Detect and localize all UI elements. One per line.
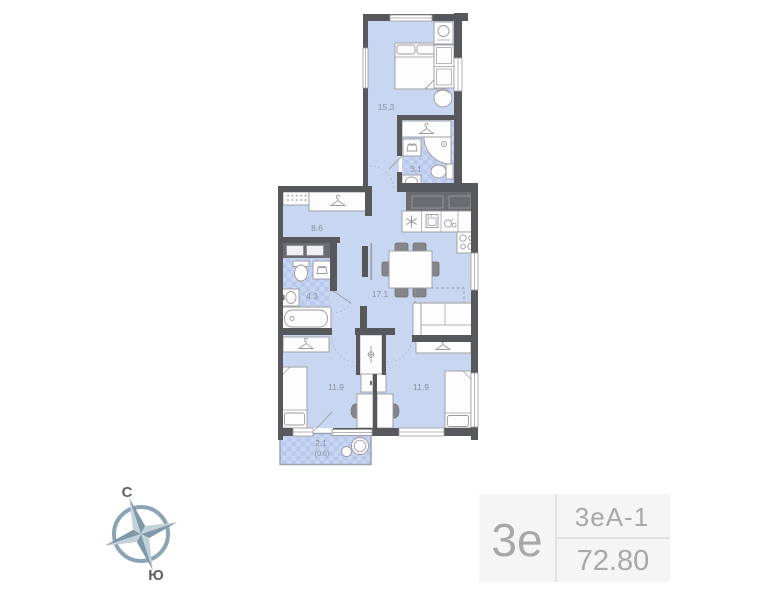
window-balcony-band	[332, 430, 372, 436]
dining-table	[389, 251, 432, 288]
toilet	[293, 261, 309, 281]
compass: С Ю	[93, 484, 189, 584]
wardrobe	[283, 337, 329, 352]
round-chair	[434, 89, 452, 107]
window-top-bedroom-west	[363, 48, 368, 88]
desk-left	[357, 394, 373, 428]
window-living-east	[471, 253, 478, 290]
shoe-cabinet	[283, 192, 309, 205]
hall-wardrobe	[309, 192, 367, 211]
compass-north-label: С	[122, 484, 133, 501]
area-label-balcony: 2.1	[315, 438, 327, 448]
area-label-bedroom-right: 11.9	[413, 382, 429, 392]
toilet	[431, 164, 453, 179]
desk-right	[377, 394, 393, 428]
double-bed	[395, 43, 437, 89]
window-top-bedroom-east	[454, 58, 462, 91]
wardrobe	[434, 45, 454, 88]
bed	[445, 371, 471, 428]
plate-rooms-short: 3е	[491, 514, 542, 566]
washing-machine	[313, 261, 331, 279]
floor-plan-svg: 15.3 3.1	[0, 0, 760, 600]
compass-south-label: Ю	[148, 567, 163, 584]
window-bedroom-right-south	[399, 428, 444, 436]
tv	[362, 246, 368, 277]
area-label-bathroom-small: 3.1	[410, 164, 422, 174]
kitchen-upper-cabinets	[406, 192, 477, 211]
plate-total-area: 72.80	[577, 545, 650, 577]
tv-unit	[362, 243, 372, 280]
window-bedroom-right-east	[471, 373, 478, 427]
bed	[282, 367, 307, 428]
area-label-bedroom-top: 15.3	[378, 102, 395, 112]
compass-rose	[93, 486, 189, 582]
window-top-bedroom-north	[390, 15, 432, 21]
kitchen-counter	[402, 211, 477, 232]
info-plate: 3е 3еА-1 72.80	[479, 494, 670, 582]
floor-plan-page: 15.3 3.1	[0, 0, 760, 600]
area-label-bedroom-left: 11.9	[328, 382, 344, 392]
dresser-with-mirror	[434, 22, 453, 44]
window-bedroom-left-south	[293, 428, 313, 436]
area-label-bathroom-main: 4.3	[306, 291, 318, 301]
balcony-stool	[342, 447, 352, 457]
bathtub	[281, 307, 331, 330]
area-label-living-kitchen: 17.1	[372, 289, 389, 299]
closet	[402, 121, 451, 137]
area-label-hallway: 8.6	[311, 223, 323, 233]
plate-layout-code: 3еА-1	[575, 502, 649, 532]
area-label-balcony-reduced: (0.6)	[315, 451, 329, 458]
dark-cabinet	[283, 243, 331, 258]
washing-machine	[403, 139, 421, 156]
sink	[282, 289, 299, 306]
